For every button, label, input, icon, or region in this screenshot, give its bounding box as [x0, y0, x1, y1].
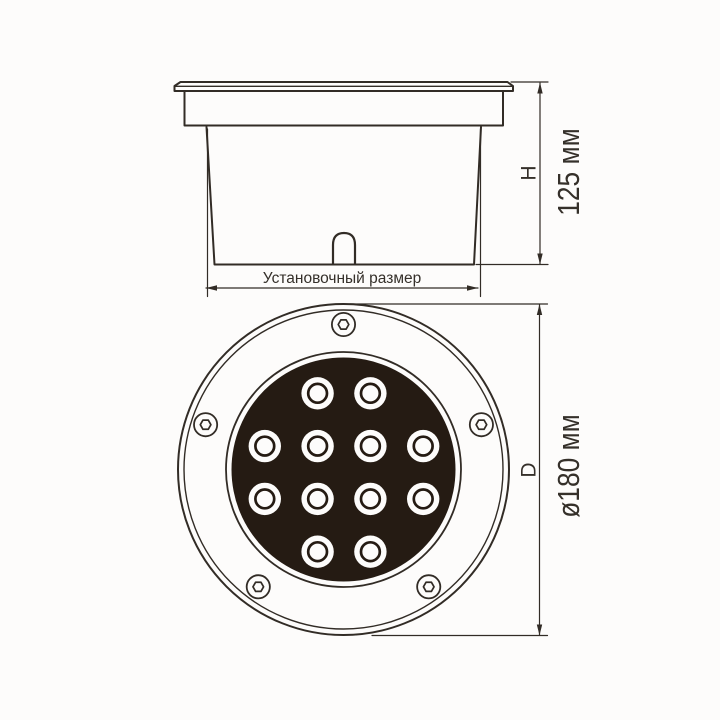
screw [332, 313, 355, 336]
height-letter-label: H [518, 165, 541, 180]
front-view [178, 304, 548, 636]
led [301, 536, 333, 568]
face-disc [232, 358, 456, 582]
led [354, 536, 386, 568]
led [301, 430, 333, 462]
led [407, 430, 439, 462]
led [301, 483, 333, 515]
d-dim-arrow-top [537, 304, 542, 315]
luminaire-dimension-drawing: Установочный размер H 125 мм D ø180 мм [0, 0, 720, 720]
led [354, 430, 386, 462]
led [354, 483, 386, 515]
led [249, 430, 281, 462]
diameter-value-label: ø180 мм [552, 414, 586, 518]
install-size-label: Установочный размер [263, 270, 421, 287]
install-dim-arrow-right [467, 285, 478, 290]
screw [417, 575, 440, 598]
led [249, 483, 281, 515]
side-view [175, 82, 549, 297]
led [407, 483, 439, 515]
d-dim-arrow-bottom [537, 625, 542, 636]
diameter-letter-label: D [518, 462, 541, 477]
led [301, 377, 333, 409]
screw [194, 413, 217, 436]
technical-drawing-page: Установочный размер H 125 мм D ø180 мм [0, 0, 720, 720]
screw [247, 575, 270, 598]
screw [470, 413, 493, 436]
h-dim-arrow-bottom [537, 254, 542, 265]
height-value-label: 125 мм [552, 128, 586, 215]
housing-body [207, 127, 482, 265]
h-dim-arrow-top [537, 83, 542, 94]
led [354, 377, 386, 409]
flange-block [185, 91, 504, 126]
